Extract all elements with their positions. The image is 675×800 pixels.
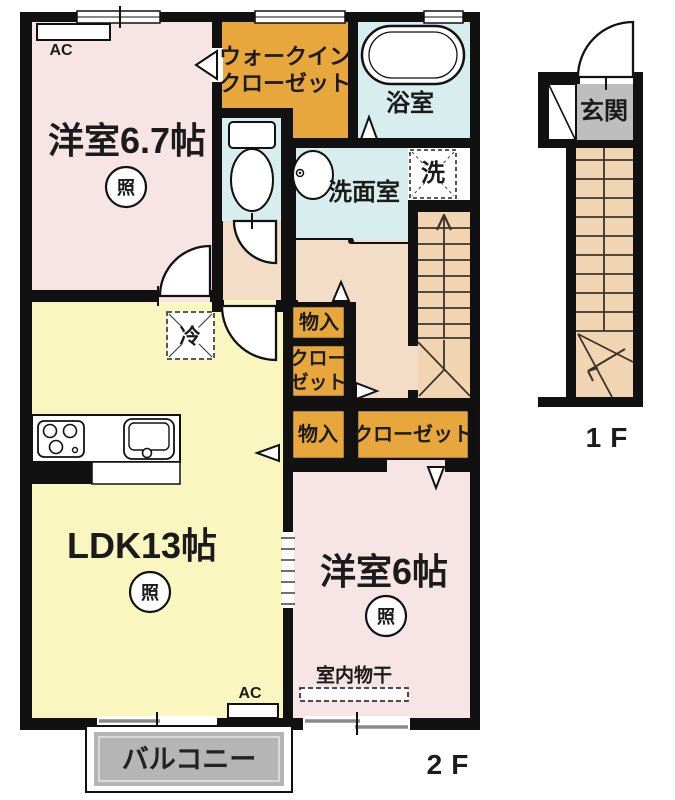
fridge-label: 冷 (180, 327, 201, 348)
drying-label: 室内物干 (316, 667, 392, 686)
ldk-label: LDK13帖 (67, 528, 217, 564)
floorplan: 洋室6.7帖 照 AC ウォークイン クローゼット 浴室 洗面室 洗 物入 クロ… (0, 0, 675, 800)
room-ldk (32, 302, 283, 718)
toilet-icon (229, 122, 275, 211)
bedroom67-label: 洋室6.7帖 (48, 123, 206, 159)
shoe-cabinet-icon (548, 84, 576, 140)
kitchen-counter-icon (32, 415, 180, 484)
hall-corridor (356, 302, 408, 398)
storage-upper-label: 物入 (299, 313, 339, 333)
light-label-bedroom67: 照 (117, 179, 135, 197)
balcony-label: バルコニー (122, 747, 256, 774)
light-label-ldk: 照 (141, 584, 159, 602)
stairs-entry-gap (408, 346, 418, 390)
closet-upper-label-line2: ゼット (289, 374, 346, 393)
door-arc-entrance (578, 22, 633, 77)
bath-label: 浴室 (386, 92, 434, 116)
bedroom6-label: 洋室6帖 (320, 554, 448, 590)
ac-label-bedroom67: AC (49, 43, 72, 59)
storage-lower-label: 物入 (298, 425, 338, 445)
ac-box-ldk (228, 704, 278, 718)
entrance-1f-block (538, 22, 643, 407)
washroom-label: 洗面室 (328, 181, 400, 205)
wic-label-line2: クローゼット (219, 73, 351, 95)
floor1-label: 1F (586, 424, 637, 452)
light-label-bedroom6: 照 (377, 608, 395, 626)
sink-icon (293, 151, 333, 199)
bedroom6-entry (281, 532, 295, 608)
bathtub-icon (362, 26, 464, 84)
ac-box-bedroom67 (37, 24, 110, 40)
kitchen-sink-icon (124, 419, 174, 459)
wic-label-line1: ウォークイン (219, 46, 351, 68)
laundry-label: 洗 (421, 162, 445, 186)
entrance-label: 玄関 (580, 100, 628, 124)
closet-upper-label-line1: クロー (289, 350, 346, 369)
stove-icon (38, 421, 84, 457)
closet-lower-label: クローゼット (353, 425, 473, 445)
drying-rod-icon (300, 688, 408, 701)
ac-label-ldk: AC (238, 686, 261, 702)
floor2-label: 2F (427, 751, 478, 779)
hall-washroom-front (296, 240, 408, 302)
